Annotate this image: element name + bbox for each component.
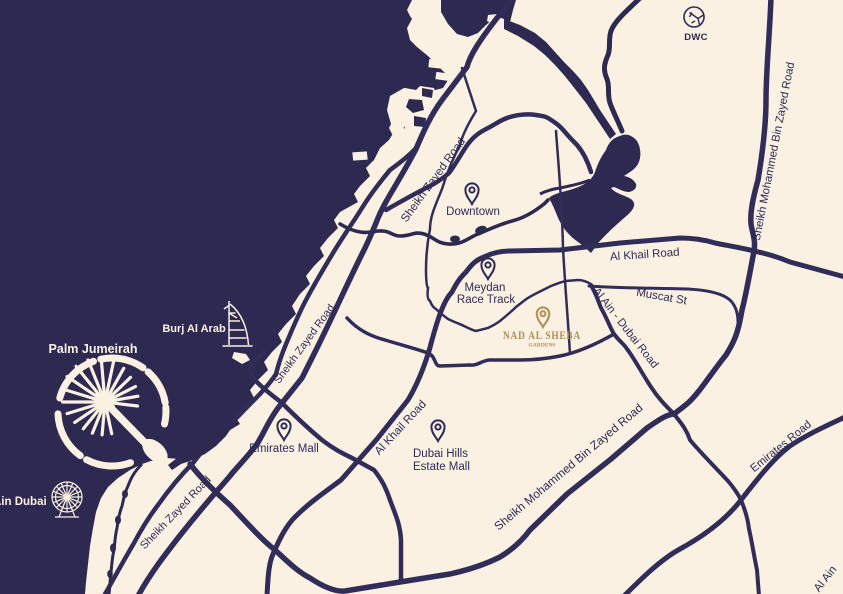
svg-text:GARDENS: GARDENS <box>529 344 556 349</box>
svg-text:Ain Dubai: Ain Dubai <box>0 496 47 508</box>
svg-text:Burj Al Arab: Burj Al Arab <box>162 323 226 335</box>
svg-text:Meydan: Meydan <box>465 282 506 294</box>
svg-text:Downtown: Downtown <box>446 206 500 218</box>
svg-text:Palm Jumeirah: Palm Jumeirah <box>49 342 138 356</box>
svg-text:Emirates Mall: Emirates Mall <box>249 443 319 455</box>
svg-text:NAD AL SHEBA: NAD AL SHEBA <box>503 328 581 342</box>
svg-text:Race Track: Race Track <box>457 294 515 306</box>
svg-text:Dubai Hills: Dubai Hills <box>413 448 468 460</box>
svg-text:DWC: DWC <box>684 32 708 43</box>
svg-text:Estate Mall: Estate Mall <box>413 461 470 473</box>
